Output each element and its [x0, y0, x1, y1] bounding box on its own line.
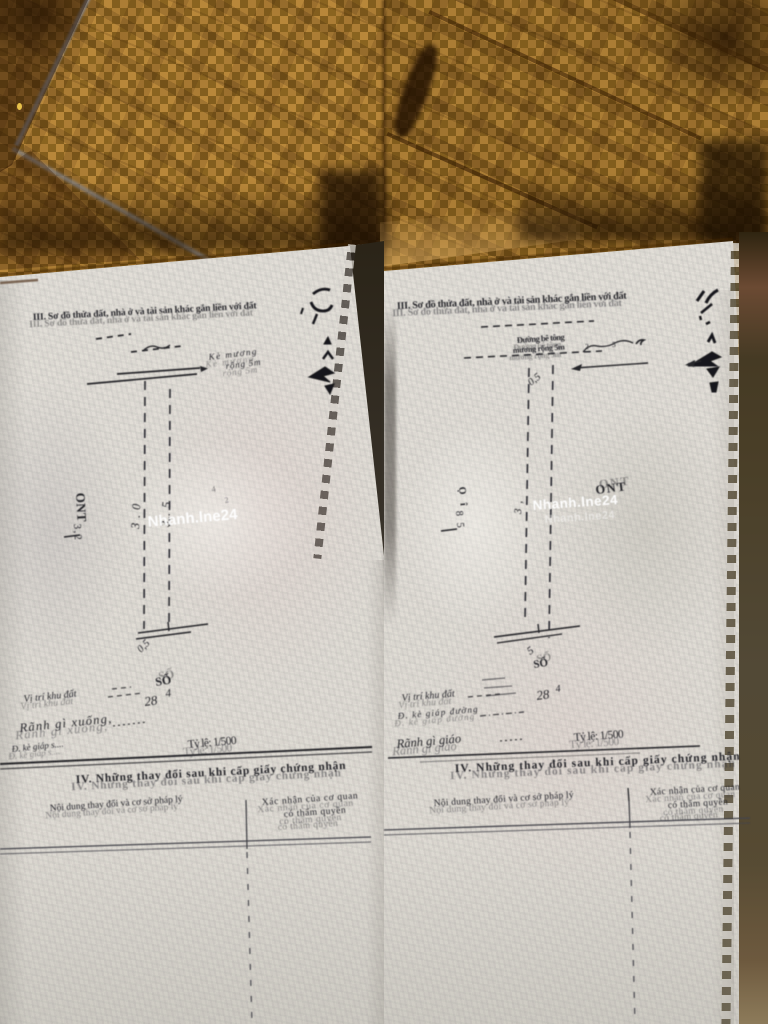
- svg-text:2: 2: [585, 342, 589, 351]
- svg-text:Vị trí khu đất: Vị trí khu đất: [401, 688, 455, 704]
- svg-text:Nội dung thay đổi và cơ sở phá: Nội dung thay đổi và cơ sở pháp lý: [49, 794, 183, 814]
- svg-text:3.0: 3.0: [128, 503, 143, 530]
- svg-text:3,: 3,: [513, 500, 525, 515]
- svg-text:3,2: 3,2: [71, 524, 83, 541]
- svg-text:Xác nhận của cơ quan: Xác nhận của cơ quan: [650, 783, 741, 798]
- svg-text:SỐ: SỐ: [532, 656, 549, 671]
- svg-text:4: 4: [555, 683, 561, 695]
- svg-text:28: 28: [143, 692, 158, 709]
- svg-text:III. Sơ đồ thửa đất, nhà ở và: III. Sơ đồ thửa đất, nhà ở và tài sản kh…: [33, 300, 258, 323]
- svg-text:Đ. kè giáp s....: Đ. kè giáp s....: [10, 739, 64, 754]
- svg-text:0,5: 0,5: [135, 638, 152, 655]
- svg-text:28: 28: [535, 686, 550, 703]
- svg-text:85: 85: [453, 510, 465, 528]
- svg-text:Rãnh gì giáo: Rãnh gì giáo: [395, 731, 462, 751]
- svg-text:Đ. kè giáp đường: Đ. kè giáp đường: [396, 704, 478, 721]
- svg-text:Tỷ lệ: 1/500: Tỷ lệ: 1/500: [187, 735, 237, 751]
- svg-text:có thẩm quyền: có thẩm quyền: [668, 796, 729, 811]
- svg-text:Nhanh.lne24: Nhanh.lne24: [544, 509, 616, 526]
- svg-text:Tỷ lệ: 1/500: Tỷ lệ: 1/500: [573, 729, 624, 744]
- svg-text:có thẩm quyền: có thẩm quyền: [660, 809, 719, 824]
- svg-text:5: 5: [612, 340, 616, 349]
- svg-text:SỐ: SỐ: [154, 671, 172, 689]
- svg-text:2: 2: [224, 495, 230, 505]
- svg-text:IV. Những thay đổi sau khi cấp: IV. Những thay đổi sau khi cấp giấy chứn…: [75, 759, 346, 786]
- svg-text:5: 5: [525, 644, 537, 657]
- svg-text:ONT: ONT: [73, 492, 90, 522]
- svg-text:có thẩm quyền: có thẩm quyền: [277, 818, 338, 833]
- svg-text:III. Sơ đồ thửa đất, nhà ở và: III. Sơ đồ thửa đất, nhà ở và tài sản kh…: [397, 291, 628, 312]
- svg-text:Vị trí khu đất: Vị trí khu đất: [23, 688, 77, 705]
- svg-text:4: 4: [165, 687, 173, 700]
- svg-text:Ọî: Ọî: [456, 486, 469, 506]
- svg-text:Nội dung thay đổi và cơ sở phá: Nội dung thay đổi và cơ sở pháp lý: [434, 789, 575, 809]
- svg-text:4: 4: [211, 484, 217, 494]
- svg-text:có thẩm quyền: có thẩm quyền: [283, 805, 346, 820]
- svg-text:Rãnh gì xuống,: Rãnh gì xuống,: [18, 711, 112, 735]
- svg-text:Nhanh.lne24: Nhanh.lne24: [147, 506, 239, 531]
